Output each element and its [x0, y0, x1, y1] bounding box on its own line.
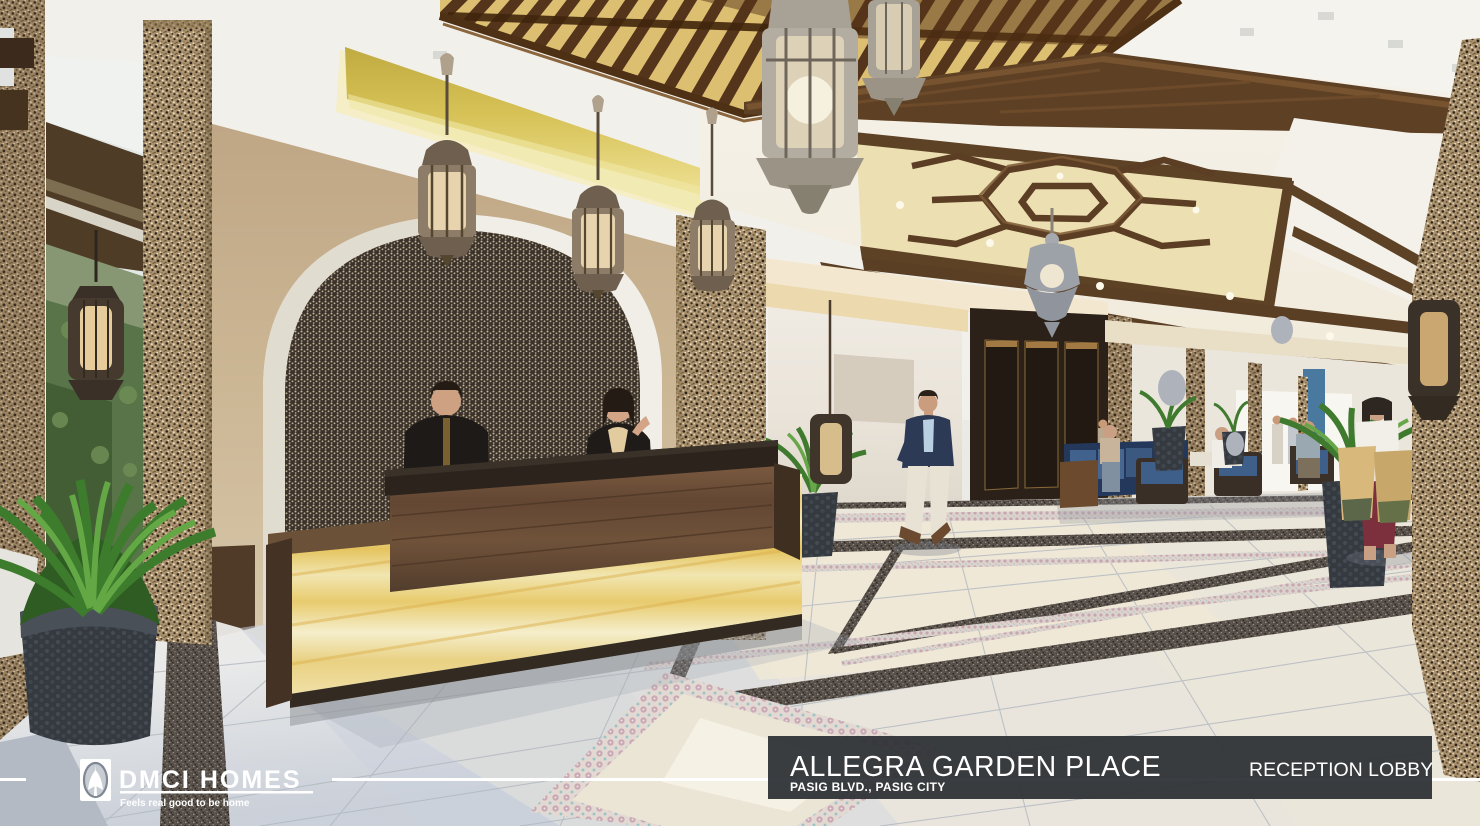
- svg-text:ALLEGRA GARDEN PLACE: ALLEGRA GARDEN PLACE: [790, 751, 1161, 783]
- svg-text:PASIG BLVD., PASIG CITY: PASIG BLVD., PASIG CITY: [790, 780, 946, 794]
- svg-text:DMCI HOMES: DMCI HOMES: [119, 766, 302, 794]
- svg-text:Feels real good to be home: Feels real good to be home: [120, 798, 250, 809]
- svg-text:RECEPTION LOBBY: RECEPTION LOBBY: [1249, 759, 1433, 781]
